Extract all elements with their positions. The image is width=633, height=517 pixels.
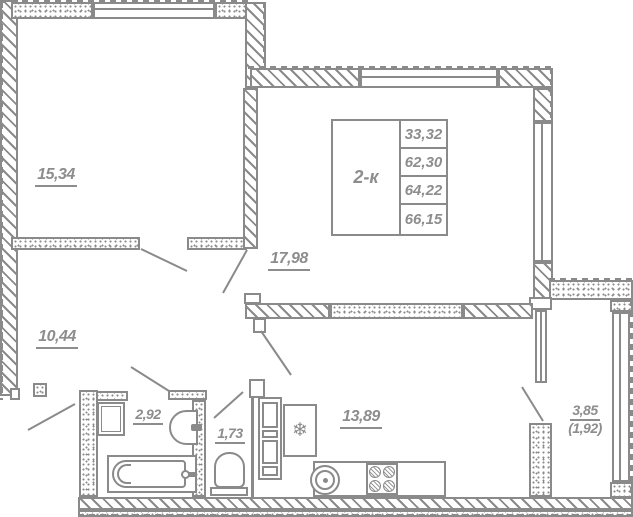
dash-edge-ne-corner <box>263 2 266 68</box>
washing-machine-inner <box>101 406 121 432</box>
kitchen-window <box>535 310 547 383</box>
kitchen-sink-drain <box>323 478 328 483</box>
balcony-area-label: 3,85 (1,92) <box>557 403 613 435</box>
stove-burner <box>369 466 381 478</box>
toilet-base <box>210 487 248 496</box>
kitchen-cabinet-column <box>258 397 282 480</box>
bathtub-faucet-stem <box>189 472 197 477</box>
wc-area-label: 1,73 <box>210 426 250 444</box>
dash-edge-living-top <box>248 66 553 69</box>
legend: 2-к 33,32 62,30 64,22 66,15 <box>331 119 448 236</box>
dash-edge-top <box>0 0 248 3</box>
hall-left-pier <box>33 383 47 397</box>
dash-edge-living-ne <box>550 68 553 122</box>
kitchen-area-label: 13,89 <box>336 409 386 429</box>
hall-kitchen-pier <box>249 379 265 398</box>
wall-bedroom-living <box>243 88 258 249</box>
cabinet-shelf <box>262 466 278 476</box>
living-window-top <box>360 68 498 88</box>
living-area-label: 17,98 <box>264 251 314 271</box>
wall-kitchen-balcony <box>529 423 552 497</box>
fridge: ❄ <box>283 404 317 457</box>
cabinet-shelf <box>262 440 278 464</box>
entrance-door-swing <box>28 404 75 430</box>
legend-area-cell: 62,30 <box>399 147 448 177</box>
wall-bedroom-top-left <box>11 2 93 19</box>
legend-area-cell: 66,15 <box>399 203 448 236</box>
living-door-swing <box>223 250 247 293</box>
wall-bedroom-hall-right <box>187 237 247 250</box>
wall-corner-cap <box>244 293 261 304</box>
balcony-area-total: 3,85 <box>570 403 599 421</box>
bathroom-door-swing <box>131 367 169 391</box>
stove-burner <box>369 480 381 492</box>
legend-area-cell: 33,32 <box>399 119 448 149</box>
bathtub <box>107 455 197 493</box>
balcony-area-reduced: (1,92) <box>568 420 602 436</box>
wall-living-top-right <box>498 68 553 88</box>
legend-area-cell: 64,22 <box>399 175 448 205</box>
bedroom-window <box>93 2 215 19</box>
bathroom-area-label: 2,92 <box>128 407 168 425</box>
wall-living-bottom-left <box>245 303 330 319</box>
hallway-area-label: 10,44 <box>32 329 82 349</box>
dash-edge-left <box>0 2 3 400</box>
kitchen-door-swing <box>261 331 291 375</box>
wall-wc-top <box>168 390 207 400</box>
bedroom-area-label: 15,34 <box>31 167 81 187</box>
floor-plan: ❄ 15,34 17,98 10,44 2,92 1,73 13,89 3,85… <box>0 0 633 517</box>
balcony-door-swing <box>522 387 543 421</box>
stove <box>366 463 398 495</box>
bathroom-sink-tap <box>191 424 202 431</box>
wall-bathroom-top <box>93 391 128 401</box>
washing-machine <box>97 402 125 436</box>
stove-burner <box>383 466 395 478</box>
wall-bathroom-left <box>79 390 98 497</box>
wall-living-bottom-right <box>463 303 533 319</box>
stove-burner <box>383 480 395 492</box>
balcony-glazing <box>612 312 630 482</box>
wall-balcony-top <box>549 280 633 300</box>
riser-block <box>253 318 266 333</box>
wall-living-top-left <box>250 68 360 88</box>
wall-wc-right <box>251 397 254 497</box>
cabinet-shelf <box>262 402 278 428</box>
snowflake-icon: ❄ <box>292 421 308 440</box>
toilet-bowl <box>214 452 245 488</box>
wc-door-swing <box>214 392 243 418</box>
left-wall-end-block <box>10 388 20 400</box>
cabinet-shelf <box>262 430 278 438</box>
legend-type-cell: 2-к <box>331 119 401 236</box>
legend-type-label: 2-к <box>353 167 378 188</box>
bathtub-inner-arc <box>117 464 131 484</box>
living-window-right <box>533 122 553 262</box>
wall-living-bottom-mid <box>330 303 463 319</box>
dash-edge-balcony-top <box>549 278 633 281</box>
wall-bedroom-hall-left <box>11 237 140 250</box>
wall-bottom <box>78 497 633 510</box>
bedroom-door-swing <box>141 249 187 271</box>
wall-bedroom-top-right <box>215 2 248 19</box>
